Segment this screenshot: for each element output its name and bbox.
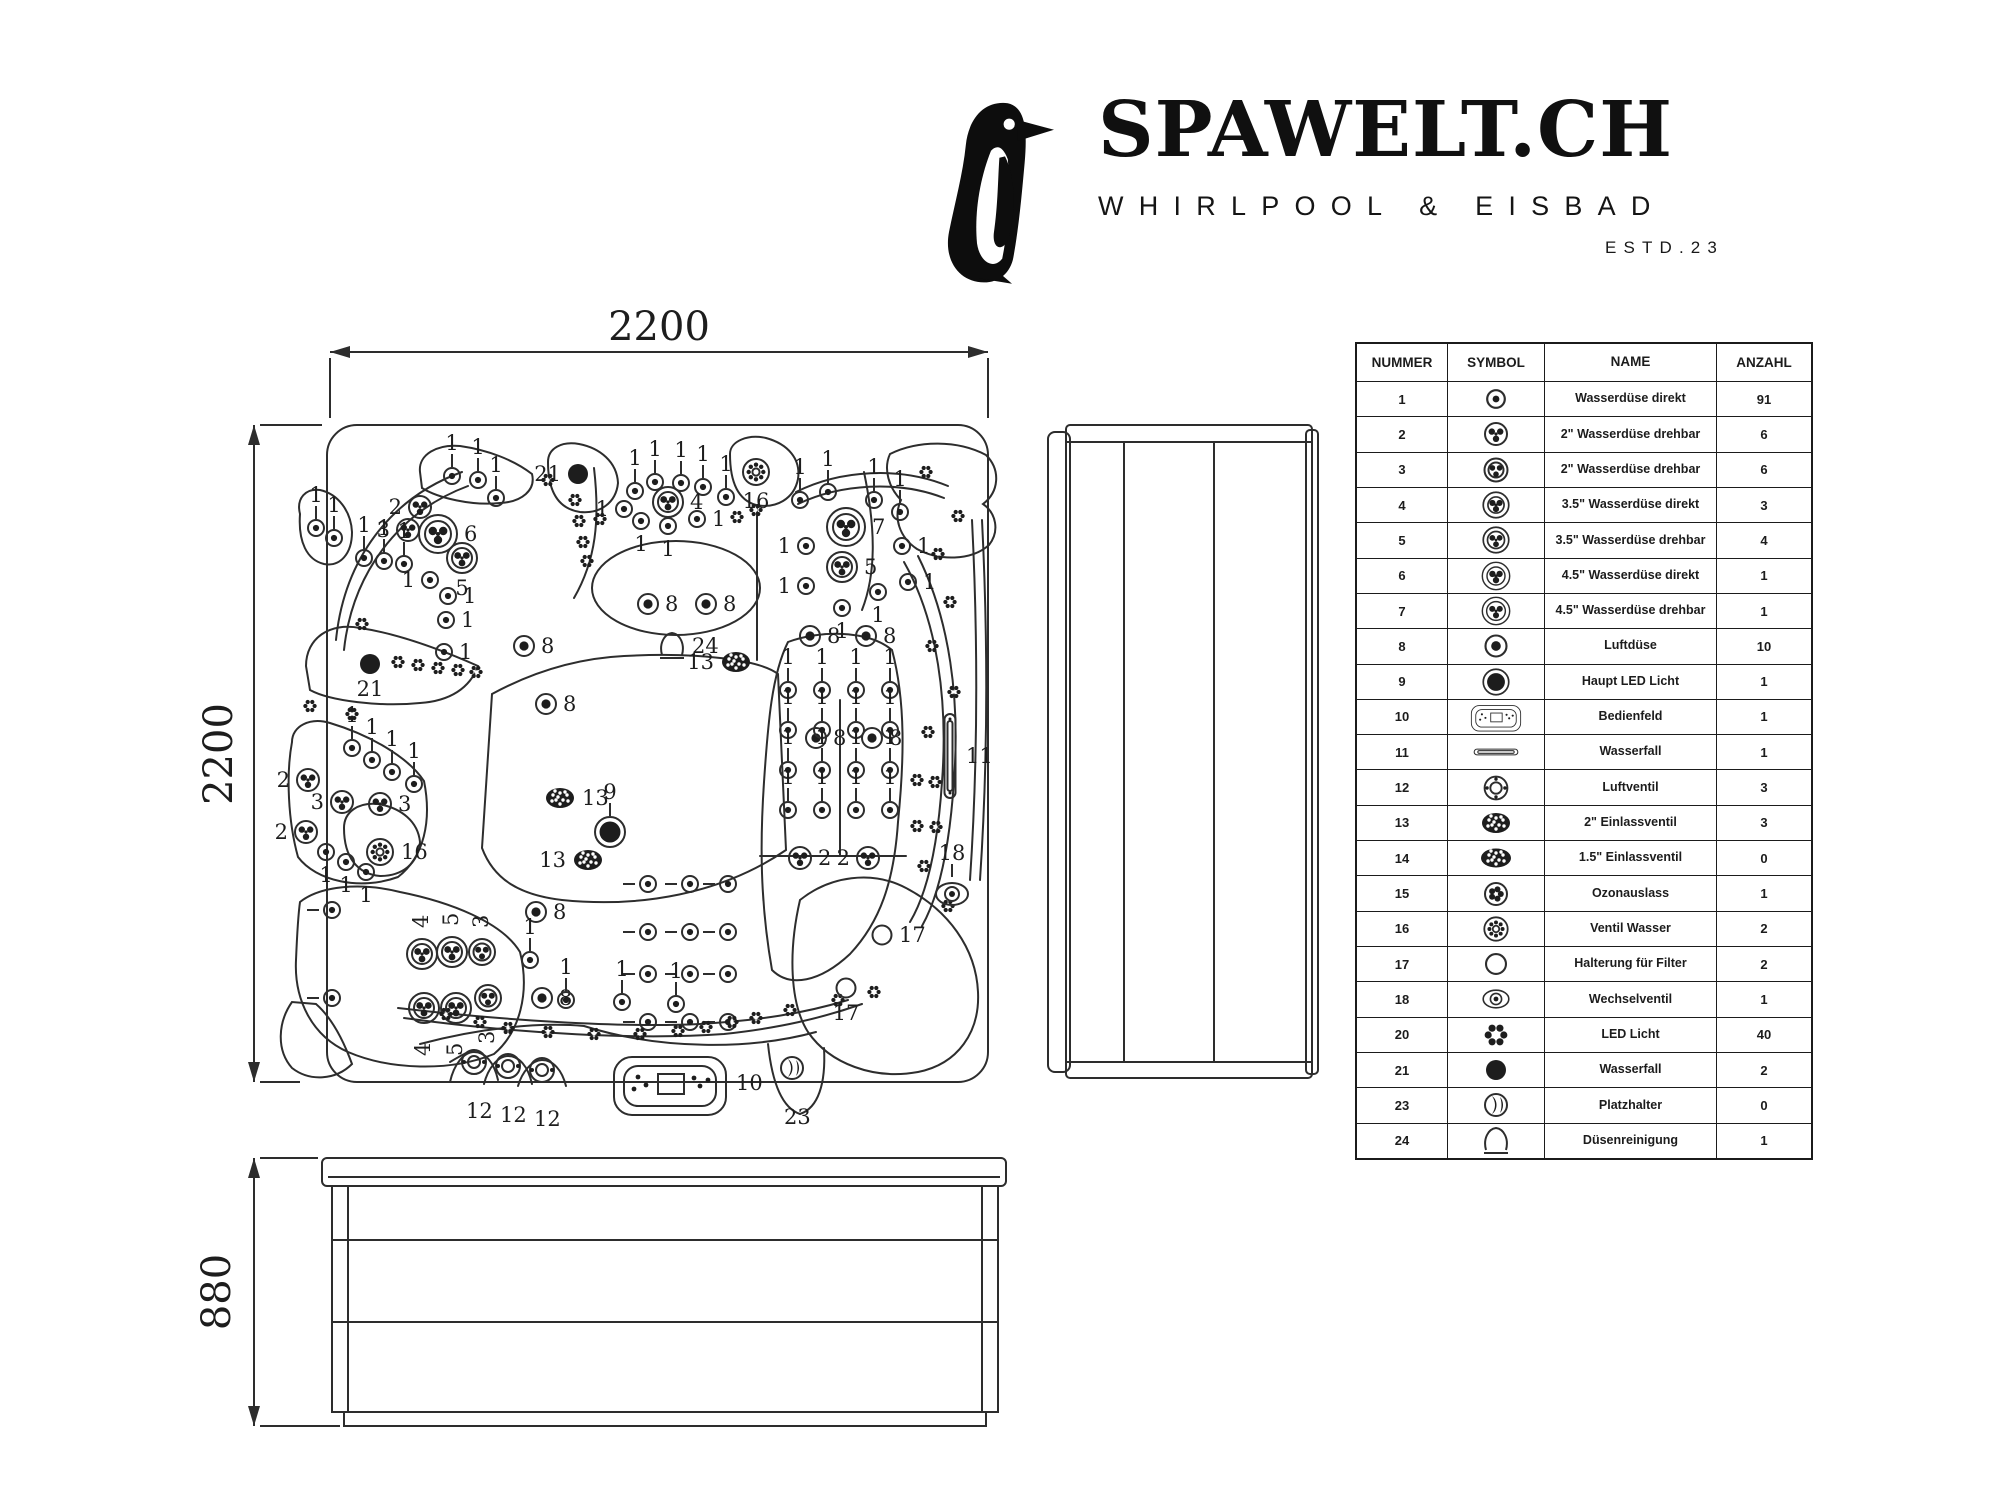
svg-text:1: 1 [815, 685, 828, 709]
jet-1-icon [668, 996, 684, 1012]
svg-text:1: 1 [781, 725, 794, 749]
part-quantity: 4 [1717, 523, 1811, 557]
jet-3-icon [331, 791, 353, 813]
part-symbol [1448, 453, 1545, 487]
svg-text:1: 1 [634, 532, 647, 556]
part-name: LED Licht [1545, 1018, 1717, 1052]
svg-text:21: 21 [534, 462, 561, 486]
part-name: Wasserdüse direkt [1545, 382, 1717, 416]
svg-text:1: 1 [781, 685, 794, 709]
svg-text:1: 1 [669, 959, 682, 983]
jet-d-icon [640, 966, 656, 982]
part-number: 12 [1357, 770, 1448, 804]
svg-text:21: 21 [357, 677, 384, 701]
table-row: 10 Bedienfeld1 [1357, 700, 1811, 735]
svg-text:1: 1 [615, 957, 628, 981]
table-row: 43.5" Wasserdüse direkt3 [1357, 488, 1811, 523]
part-number: 23 [1357, 1088, 1448, 1122]
part-name: 1.5" Einlassventil [1545, 841, 1717, 875]
panel-symbol-icon [1470, 701, 1522, 733]
jet-4-icon [409, 993, 439, 1023]
part-symbol [1448, 947, 1545, 981]
svg-text:1: 1 [459, 640, 472, 664]
jet-1-icon [834, 600, 850, 616]
svg-text:2: 2 [275, 820, 288, 844]
part-quantity: 0 [1717, 1088, 1811, 1122]
oz-symbol-icon [1470, 878, 1522, 910]
jet-1-icon [376, 553, 392, 569]
svg-text:10: 10 [736, 1071, 763, 1095]
svg-text:1: 1 [849, 725, 862, 749]
jd-symbol-icon [1470, 383, 1522, 415]
svg-text:5: 5 [443, 1043, 467, 1056]
part-symbol [1448, 841, 1545, 875]
part-symbol [1448, 382, 1545, 416]
part-quantity: 1 [1717, 982, 1811, 1016]
jet-f-icon [951, 510, 964, 522]
part-symbol [1448, 665, 1545, 699]
jet-1-icon [470, 472, 486, 488]
svg-text:1: 1 [849, 645, 862, 669]
part-quantity: 2 [1717, 947, 1811, 981]
svg-text:3: 3 [377, 518, 390, 542]
header-symbol: SYMBOL [1448, 344, 1545, 381]
jet-4-icon [407, 939, 437, 969]
svg-text:12: 12 [534, 1107, 561, 1131]
svg-text:1: 1 [781, 765, 794, 789]
svg-text:1: 1 [661, 537, 674, 561]
part-symbol [1448, 1053, 1545, 1087]
air-symbol-icon [1470, 630, 1522, 662]
svg-text:1: 1 [917, 534, 930, 558]
jet-8-icon [536, 694, 556, 714]
part-name: Wasserfall [1545, 1053, 1717, 1087]
svg-text:8: 8 [723, 592, 736, 616]
svg-text:1: 1 [883, 765, 896, 789]
svg-text:1: 1 [327, 493, 340, 517]
svg-text:1: 1 [923, 570, 936, 594]
table-row: 9Haupt LED Licht1 [1357, 665, 1811, 700]
svg-text:4: 4 [690, 490, 703, 514]
in15-symbol-icon [1470, 842, 1522, 874]
jet-f-icon [749, 1012, 762, 1024]
table-row: 20LED Licht40 [1357, 1018, 1811, 1053]
jet-f-icon [928, 776, 941, 788]
svg-text:1: 1 [778, 574, 791, 598]
jet-f-icon [725, 1016, 738, 1028]
part-quantity: 1 [1717, 559, 1811, 593]
part-name: Düsenreinigung [1545, 1124, 1717, 1158]
jet-1-icon [384, 764, 400, 780]
part-quantity: 6 [1717, 417, 1811, 451]
jet-f-icon [541, 1026, 554, 1038]
jet-8-icon [514, 636, 534, 656]
part-quantity: 40 [1717, 1018, 1811, 1052]
side-view [1048, 425, 1318, 1078]
jet-d-icon [720, 924, 736, 940]
mled-symbol-icon [1470, 666, 1522, 698]
jet-13-icon [574, 850, 602, 870]
svg-text:8: 8 [553, 900, 566, 924]
table-row: 17Halterung für Filter2 [1357, 947, 1811, 982]
jet-f-icon [431, 662, 444, 674]
jet-1-icon [718, 489, 734, 505]
jet-1-icon [660, 518, 676, 534]
part-quantity: 1 [1717, 876, 1811, 910]
table-row: 1Wasserdüse direkt91 [1357, 382, 1811, 417]
svg-text:9: 9 [603, 780, 616, 804]
svg-text:8: 8 [563, 692, 576, 716]
jet-f-icon [919, 466, 932, 478]
part-quantity: 10 [1717, 629, 1811, 663]
svg-text:1: 1 [309, 483, 322, 507]
part-symbol [1448, 594, 1545, 628]
sloth-symbol-icon [1470, 736, 1522, 768]
jet-1-icon [780, 802, 796, 818]
part-quantity: 6 [1717, 453, 1811, 487]
jet-7-icon [827, 508, 865, 546]
part-name: 3.5" Wasserdüse direkt [1545, 488, 1717, 522]
jet-1-icon [647, 474, 663, 490]
jet-18-icon [936, 883, 968, 905]
jet-5-icon [447, 543, 477, 573]
svg-text:1: 1 [489, 453, 502, 477]
jet-9-icon [595, 817, 625, 847]
part-quantity: 3 [1717, 806, 1811, 840]
jet-8-icon [532, 988, 552, 1008]
svg-text:17: 17 [899, 923, 926, 947]
jet-2-icon [297, 769, 319, 791]
part-symbol [1448, 735, 1545, 769]
table-row: 24Düsenreinigung1 [1357, 1124, 1811, 1158]
svg-text:7: 7 [872, 515, 885, 539]
jet-4-icon [653, 487, 683, 517]
part-name: 3.5" Wasserdüse drehbar [1545, 523, 1717, 557]
svg-text:1: 1 [696, 442, 709, 466]
svg-text:1: 1 [712, 507, 725, 531]
table-row: 12Luftventil3 [1357, 770, 1811, 805]
svg-text:2200: 2200 [608, 304, 710, 350]
svg-text:17: 17 [833, 1001, 860, 1025]
part-name: Halterung für Filter [1545, 947, 1717, 981]
svg-text:2: 2 [389, 495, 402, 519]
part-quantity: 3 [1717, 488, 1811, 522]
jet-1-icon [614, 994, 630, 1010]
wv-symbol-icon [1470, 983, 1522, 1015]
jet-f-icon [469, 666, 482, 678]
jet-f-icon [910, 820, 923, 832]
svg-text:1: 1 [893, 467, 906, 491]
jet-23-icon [781, 1057, 803, 1079]
part-number: 4 [1357, 488, 1448, 522]
jet-12-icon [530, 1058, 554, 1082]
svg-text:1: 1 [357, 513, 370, 537]
jet-d-icon [640, 876, 656, 892]
svg-text:1: 1 [559, 955, 572, 979]
svg-text:13: 13 [687, 650, 714, 674]
jet-13-icon [722, 652, 750, 672]
svg-text:16: 16 [401, 840, 428, 864]
svg-text:1: 1 [471, 435, 484, 459]
part-name: Ventil Wasser [1545, 912, 1717, 946]
jet-1-icon [308, 520, 324, 536]
top-view: 1111111123651111211111111114167511111111… [275, 425, 997, 1131]
jet-1-icon [326, 530, 342, 546]
jet-f-icon [572, 515, 585, 527]
jet-3-icon [469, 939, 495, 965]
jet-f-icon [921, 726, 934, 738]
part-number: 10 [1357, 700, 1448, 734]
svg-text:1: 1 [883, 725, 896, 749]
svg-text:8: 8 [541, 634, 554, 658]
svg-text:11: 11 [966, 744, 993, 768]
jet-1-icon [338, 854, 354, 870]
svg-text:1: 1 [883, 645, 896, 669]
dimension-front-height: 880 [194, 1158, 340, 1426]
jet-f-icon [391, 656, 404, 668]
jet-1-icon [894, 538, 910, 554]
part-quantity: 1 [1717, 1124, 1811, 1158]
jet-f-icon [943, 596, 956, 608]
svg-text:1: 1 [339, 873, 352, 897]
jet-1-icon [522, 952, 538, 968]
svg-text:1: 1 [407, 739, 420, 763]
part-number: 5 [1357, 523, 1448, 557]
part-symbol [1448, 876, 1545, 910]
part-number: 3 [1357, 453, 1448, 487]
table-row: 18Wechselventil1 [1357, 982, 1811, 1017]
svg-text:1: 1 [674, 438, 687, 462]
jet-17-icon [873, 926, 892, 945]
table-row: 141.5" Einlassventil0 [1357, 841, 1811, 876]
jr-symbol-icon [1470, 418, 1522, 450]
svg-text:13: 13 [539, 848, 566, 872]
jet-1-icon [440, 588, 456, 604]
svg-text:1: 1 [359, 883, 372, 907]
jet-8-icon [862, 728, 882, 748]
part-number: 13 [1357, 806, 1448, 840]
jet-d-icon [640, 924, 656, 940]
j35d-symbol-icon [1470, 489, 1522, 521]
part-quantity: 1 [1717, 700, 1811, 734]
jet-2-icon [295, 821, 317, 843]
fr-symbol-icon [1470, 948, 1522, 980]
table-row: 53.5" Wasserdüse drehbar4 [1357, 523, 1811, 558]
svg-text:1: 1 [463, 584, 476, 608]
part-number: 18 [1357, 982, 1448, 1016]
svg-text:8: 8 [833, 726, 846, 750]
jet-f-icon [910, 774, 923, 786]
svg-text:2: 2 [277, 768, 290, 792]
front-view [322, 1158, 1006, 1426]
jet-1-icon [870, 584, 886, 600]
svg-text:2: 2 [837, 846, 850, 870]
jet-8-icon [638, 594, 658, 614]
parts-table: NUMMER SYMBOL NAME ANZAHL 1Wasserdüse di… [1355, 342, 1813, 1160]
part-name: Platzhalter [1545, 1088, 1717, 1122]
jet-1-icon [406, 776, 422, 792]
table-row: 23Platzhalter0 [1357, 1088, 1811, 1123]
table-row: 8Luftdüse10 [1357, 629, 1811, 664]
jet-3-icon [475, 985, 501, 1011]
part-name: 4.5" Wasserdüse direkt [1545, 559, 1717, 593]
table-row: 16Ventil Wasser2 [1357, 912, 1811, 947]
svg-text:1: 1 [883, 685, 896, 709]
part-symbol [1448, 700, 1545, 734]
wfd-symbol-icon [1470, 1054, 1522, 1086]
header-name: NAME [1545, 344, 1717, 381]
jet-1-icon [848, 802, 864, 818]
part-name: Ozonauslass [1545, 876, 1717, 910]
table-row: 64.5" Wasserdüse direkt1 [1357, 559, 1811, 594]
vw-symbol-icon [1470, 913, 1522, 945]
jet-f-icon [925, 640, 938, 652]
table-row: 74.5" Wasserdüse drehbar1 [1357, 594, 1811, 629]
svg-text:1: 1 [849, 685, 862, 709]
jet-2-icon [857, 847, 879, 869]
jet-8-icon [696, 594, 716, 614]
svg-text:12: 12 [500, 1103, 527, 1127]
table-row: 22" Wasserdüse drehbar6 [1357, 417, 1811, 452]
part-number: 1 [1357, 382, 1448, 416]
jet-1-icon [364, 752, 380, 768]
svg-text:3: 3 [469, 915, 493, 928]
header-nummer: NUMMER [1357, 344, 1448, 381]
jet-1-icon [627, 483, 643, 499]
part-name: 2" Einlassventil [1545, 806, 1717, 840]
part-name: Wechselventil [1545, 982, 1717, 1016]
jr2-symbol-icon [1470, 454, 1522, 486]
jet-1-icon [798, 578, 814, 594]
part-symbol [1448, 1018, 1545, 1052]
part-symbol [1448, 770, 1545, 804]
table-row: 11Wasserfall1 [1357, 735, 1811, 770]
part-quantity: 1 [1717, 665, 1811, 699]
jet-1-icon [422, 572, 438, 588]
jet-f-icon [411, 659, 424, 671]
part-name: Haupt LED Licht [1545, 665, 1717, 699]
header-anzahl: ANZAHL [1717, 344, 1811, 381]
jet-d-icon [720, 876, 736, 892]
part-name: 2" Wasserdüse drehbar [1545, 417, 1717, 451]
part-number: 6 [1357, 559, 1448, 593]
jet-13-icon [546, 788, 574, 808]
jet-16-icon [743, 459, 769, 485]
jet-1-icon [344, 740, 360, 756]
svg-text:4: 4 [411, 1043, 435, 1056]
part-symbol [1448, 982, 1545, 1016]
part-number: 16 [1357, 912, 1448, 946]
cone-symbol-icon [1470, 1125, 1522, 1157]
part-number: 11 [1357, 735, 1448, 769]
svg-text:1: 1 [815, 725, 828, 749]
svg-text:16: 16 [743, 489, 770, 513]
part-number: 15 [1357, 876, 1448, 910]
led-symbol-icon [1470, 1019, 1522, 1051]
svg-text:1: 1 [628, 446, 641, 470]
part-quantity: 0 [1717, 841, 1811, 875]
part-symbol [1448, 1124, 1545, 1158]
dimension-height: 2200 [196, 425, 322, 1082]
svg-text:1: 1 [319, 863, 332, 887]
svg-text:1: 1 [385, 727, 398, 751]
part-symbol [1448, 1088, 1545, 1122]
svg-text:8: 8 [665, 592, 678, 616]
jet-10-icon [614, 1057, 726, 1115]
jet-f-icon [576, 536, 589, 548]
part-number: 17 [1357, 947, 1448, 981]
jet-5-icon [827, 552, 857, 582]
table-row: 32" Wasserdüse drehbar6 [1357, 453, 1811, 488]
part-number: 24 [1357, 1124, 1448, 1158]
jet-d-icon [682, 924, 698, 940]
part-symbol [1448, 523, 1545, 557]
jet-12-icon [496, 1054, 520, 1078]
part-symbol [1448, 488, 1545, 522]
dimension-width: 2200 [330, 304, 988, 418]
svg-text:1: 1 [781, 645, 794, 669]
jet-1-icon [438, 612, 454, 628]
jet-f-icon [568, 494, 581, 506]
part-quantity: 3 [1717, 770, 1811, 804]
part-symbol [1448, 559, 1545, 593]
svg-text:4: 4 [409, 915, 433, 928]
svg-text:5: 5 [439, 913, 463, 926]
jet-1-icon [882, 802, 898, 818]
part-number: 7 [1357, 594, 1448, 628]
in2-symbol-icon [1470, 807, 1522, 839]
jet-d-icon [720, 966, 736, 982]
part-number: 14 [1357, 841, 1448, 875]
jet-d-icon [682, 876, 698, 892]
svg-text:1: 1 [445, 431, 458, 455]
jet-1-icon [436, 644, 452, 660]
part-name: 4.5" Wasserdüse drehbar [1545, 594, 1717, 628]
jet-16-icon [367, 839, 393, 865]
j35r-symbol-icon [1470, 524, 1522, 556]
svg-text:5: 5 [864, 555, 877, 579]
svg-text:880: 880 [194, 1254, 240, 1330]
svg-text:1: 1 [461, 608, 474, 632]
part-number: 21 [1357, 1053, 1448, 1087]
page: SPAWELT.CH WHIRLPOOL & EISBAD ESTD.23 11… [0, 0, 2000, 1500]
j45d-symbol-icon [1470, 560, 1522, 592]
part-quantity: 1 [1717, 735, 1811, 769]
jet-d-icon [682, 966, 698, 982]
svg-text:1: 1 [815, 765, 828, 789]
part-number: 9 [1357, 665, 1448, 699]
svg-text:1: 1 [365, 715, 378, 739]
table-row: 132" Einlassventil3 [1357, 806, 1811, 841]
jet-17-icon [837, 979, 856, 998]
svg-text:1: 1 [815, 645, 828, 669]
part-symbol [1448, 629, 1545, 663]
svg-text:1: 1 [821, 447, 834, 471]
jet-2-icon [789, 847, 811, 869]
jet-1-icon [892, 504, 908, 520]
jet-1-icon [358, 864, 374, 880]
jet-1-icon [616, 501, 632, 517]
part-symbol [1448, 912, 1545, 946]
svg-text:1: 1 [648, 437, 661, 461]
jet-f-icon [451, 664, 464, 676]
part-quantity: 91 [1717, 382, 1811, 416]
part-name: Bedienfeld [1545, 700, 1717, 734]
part-quantity: 2 [1717, 912, 1811, 946]
part-name: Luftventil [1545, 770, 1717, 804]
svg-text:1: 1 [719, 452, 732, 476]
svg-text:1: 1 [778, 534, 791, 558]
